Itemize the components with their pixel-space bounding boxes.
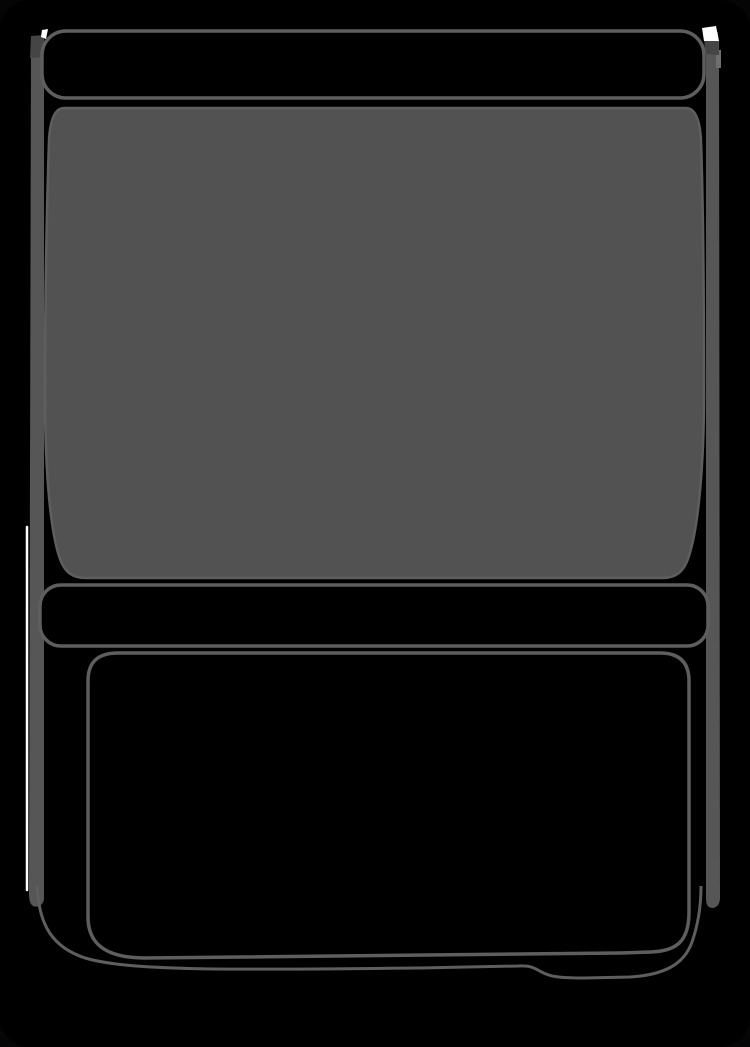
right-side-band	[706, 40, 720, 908]
window-panel	[45, 108, 704, 578]
appliance-illustration	[0, 0, 750, 1047]
drawer-panel	[88, 653, 689, 958]
handle-bar	[40, 585, 708, 646]
illustration-stage	[0, 0, 750, 1047]
top-panel-bar	[42, 31, 704, 98]
left-side-band	[29, 38, 44, 907]
